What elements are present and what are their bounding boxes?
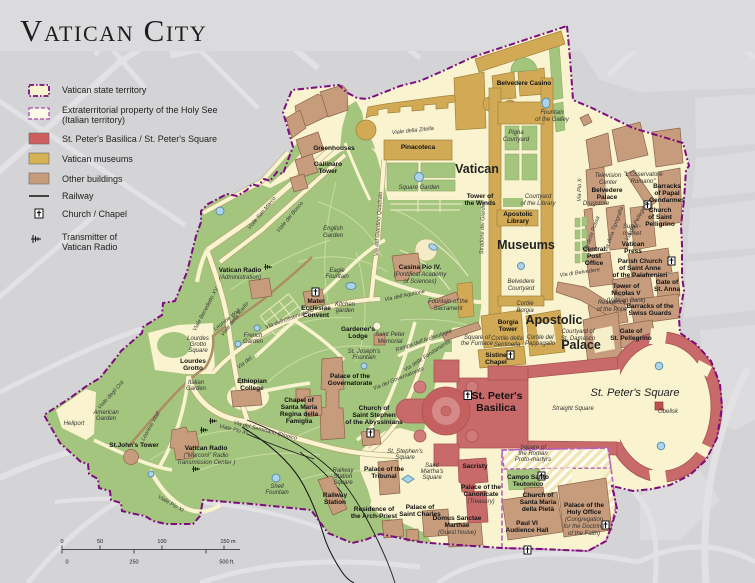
svg-text:Residence: Residence [598, 300, 627, 306]
svg-text:(Congregation: (Congregation [565, 517, 604, 523]
svg-text:Cortile: Cortile [516, 301, 534, 307]
svg-text:Basilica: Basilica [476, 402, 516, 414]
svg-text:Belvedere: Belvedere [507, 279, 535, 285]
svg-text:Grotto: Grotto [183, 365, 203, 372]
svg-text:Domus Sanctae: Domus Sanctae [433, 515, 482, 522]
svg-text:Heliport: Heliport [64, 421, 85, 427]
svg-text:Central: Central [583, 246, 606, 253]
svg-text:Audience Hall: Audience Hall [506, 527, 549, 534]
svg-text:of the Abyssinians: of the Abyssinians [345, 419, 403, 426]
svg-text:500 ft.: 500 ft. [219, 560, 235, 566]
svg-text:Vatican: Vatican [455, 162, 499, 176]
svg-text:St. Pellegrino: St. Pellegrino [610, 335, 652, 342]
svg-text:0: 0 [65, 560, 68, 566]
svg-text:Super-: Super- [623, 224, 641, 230]
svg-text:Drugstore: Drugstore [583, 201, 610, 207]
svg-text:Tower: Tower [319, 168, 338, 175]
svg-text:Mater: Mater [307, 298, 325, 305]
svg-text:Via Pio X: Via Pio X [577, 178, 584, 201]
svg-text:("Marconi" Radio: ("Marconi" Radio [184, 453, 230, 459]
svg-text:Center: Center [599, 180, 618, 186]
svg-text:of the Library: of the Library [520, 201, 556, 207]
svg-text:Palace of the: Palace of the [564, 502, 604, 509]
svg-text:Swiss Guards: Swiss Guards [629, 310, 672, 317]
svg-text:Marthae: Marthae [445, 522, 470, 529]
svg-text:Teutonico: Teutonico [513, 481, 544, 488]
svg-text:Palace of the: Palace of the [330, 373, 370, 380]
svg-text:St.John's Tower: St.John's Tower [109, 442, 159, 449]
svg-text:of Papal: of Papal [654, 190, 679, 197]
svg-text:Vatican museums: Vatican museums [62, 154, 133, 164]
svg-text:St. Damasco: St. Damasco [561, 336, 596, 342]
svg-text:(Pontifical Academy: (Pontifical Academy [394, 272, 448, 278]
svg-text:Santa Maria: Santa Maria [281, 404, 318, 411]
svg-text:Vatican: Vatican [622, 241, 645, 248]
svg-text:(Administration): (Administration) [219, 275, 261, 281]
svg-text:Gendarmes: Gendarmes [649, 197, 685, 204]
svg-text:Barracks: Barracks [653, 183, 681, 190]
svg-text:of the Palafrenieri: of the Palafrenieri [613, 272, 668, 279]
svg-text:Lourdes: Lourdes [180, 358, 206, 365]
svg-text:Square: Square [333, 480, 353, 486]
svg-text:Saint Stephen: Saint Stephen [352, 412, 395, 419]
svg-text:Extraterritorial property of t: Extraterritorial property of the Holy Se… [62, 105, 218, 115]
svg-text:Residence of: Residence of [354, 506, 395, 513]
svg-text:Gate of: Gate of [620, 328, 643, 335]
svg-text:Palace of the: Palace of the [461, 484, 501, 491]
svg-text:College: College [240, 385, 264, 392]
svg-text:the Furnace: the Furnace [461, 341, 494, 347]
svg-text:Church / Chapel: Church / Chapel [62, 209, 127, 219]
svg-text:Belvedere Casino: Belvedere Casino [497, 80, 552, 87]
svg-text:Paul VI: Paul VI [516, 520, 538, 527]
svg-text:the Winds: the Winds [465, 200, 496, 207]
svg-text:Vatican state territory: Vatican state territory [62, 85, 147, 95]
svg-text:Garden: Garden [323, 233, 344, 239]
svg-text:St. Peter's: St. Peter's [472, 390, 523, 402]
svg-text:Gate of: Gate of [656, 279, 679, 286]
svg-text:Church of: Church of [359, 405, 391, 412]
svg-text:Television: Television [595, 173, 622, 179]
svg-text:Apostolic: Apostolic [503, 211, 533, 218]
svg-text:Courtyard: Courtyard [525, 194, 552, 200]
svg-text:Square: Square [395, 455, 415, 461]
svg-text:Sistine: Sistine [485, 352, 507, 359]
svg-text:Palace of: Palace of [406, 504, 435, 511]
svg-text:market: market [623, 231, 642, 237]
svg-text:Garden: Garden [243, 339, 264, 345]
svg-text:Square: Square [188, 348, 208, 354]
svg-text:Pappagallo: Pappagallo [525, 341, 556, 347]
svg-text:Borgia: Borgia [516, 308, 534, 314]
svg-text:della Pietà: della Pietà [522, 506, 555, 513]
svg-text:Memorial: Memorial [378, 339, 403, 345]
svg-text:Square Garden: Square Garden [398, 185, 440, 191]
svg-text:Convent: Convent [303, 312, 330, 319]
svg-text:250: 250 [129, 560, 138, 566]
svg-text:Famiglia: Famiglia [286, 418, 313, 425]
svg-text:of Sciences): of Sciences) [403, 279, 436, 285]
svg-text:of Saint: of Saint [648, 214, 673, 221]
svg-text:of the Faith): of the Faith) [568, 531, 600, 537]
svg-text:Sacrament: Sacrament [433, 306, 462, 312]
svg-text:Vatican City: Vatican City [20, 13, 207, 48]
svg-text:Vatican Radio: Vatican Radio [62, 242, 117, 252]
svg-text:Ethiopian: Ethiopian [237, 378, 267, 385]
svg-text:Vatican Radio: Vatican Radio [219, 267, 262, 274]
svg-text:Railway: Railway [62, 191, 94, 201]
svg-text:Museums: Museums [497, 238, 555, 252]
svg-text:Casina Pio IV.: Casina Pio IV. [399, 264, 442, 271]
svg-text:Square: Square [422, 475, 442, 481]
svg-text:"L'Osservatore: "L'Osservatore [623, 172, 663, 178]
svg-text:Church: Church [649, 207, 672, 214]
svg-text:Tower: Tower [499, 326, 518, 333]
svg-text:Courtyard of: Courtyard of [561, 329, 595, 335]
svg-text:100: 100 [157, 539, 166, 545]
svg-text:Pinacoteca: Pinacoteca [401, 144, 436, 151]
svg-text:Office: Office [585, 260, 604, 267]
svg-text:for the Doctrine: for the Doctrine [563, 524, 605, 530]
svg-text:Garden: Garden [186, 386, 207, 392]
svg-text:Lodge: Lodge [348, 333, 368, 340]
svg-text:Barracks of the: Barracks of the [626, 303, 674, 310]
svg-text:Tribunal: Tribunal [371, 473, 396, 480]
svg-text:English: English [323, 226, 343, 232]
svg-text:Obelisk: Obelisk [658, 409, 679, 415]
svg-text:Saint Peter: Saint Peter [375, 332, 406, 338]
svg-text:Fountain: Fountain [540, 110, 564, 116]
svg-text:Straight Square: Straight Square [552, 406, 594, 412]
svg-text:Pelligrino: Pelligrino [645, 221, 675, 228]
svg-text:50: 50 [97, 539, 103, 545]
svg-text:St. Peter's Square: St. Peter's Square [591, 387, 680, 399]
svg-text:Sentinella: Sentinella [494, 342, 521, 348]
svg-text:of the Pope: of the Pope [597, 307, 628, 313]
svg-text:Chapel of: Chapel of [284, 397, 314, 404]
svg-text:Apostolic: Apostolic [526, 313, 583, 327]
svg-text:Santa Maria: Santa Maria [520, 499, 557, 506]
svg-text:St. Peter's Basilica / St. Pet: St. Peter's Basilica / St. Peter's Squar… [62, 134, 217, 144]
svg-text:St. Anna: St. Anna [654, 286, 681, 293]
svg-text:Garden: Garden [96, 416, 117, 422]
svg-text:Gardener's: Gardener's [341, 326, 375, 333]
svg-text:(Guest house): (Guest house) [438, 530, 476, 536]
svg-text:Press: Press [624, 248, 642, 255]
svg-text:Fountain: Fountain [352, 355, 376, 361]
svg-text:Fountain of the: Fountain of the [428, 299, 469, 305]
svg-text:Vatican Radio: Vatican Radio [185, 445, 228, 452]
svg-text:Church of: Church of [523, 492, 555, 499]
svg-text:(Italian territory): (Italian territory) [62, 115, 125, 125]
svg-text:Library: Library [507, 218, 529, 225]
svg-text:Governatorate: Governatorate [328, 380, 373, 387]
svg-text:Tower of: Tower of [613, 283, 640, 290]
svg-text:Canonicate: Canonicate [463, 491, 498, 498]
svg-text:Nicolas V: Nicolas V [611, 290, 641, 297]
svg-text:(Treasury): (Treasury) [467, 499, 494, 505]
svg-text:0: 0 [60, 539, 63, 545]
svg-text:Fountain: Fountain [325, 274, 349, 280]
svg-text:Holy Office: Holy Office [567, 509, 602, 516]
svg-text:Borgia: Borgia [498, 319, 519, 326]
svg-text:the Arch-Priest: the Arch-Priest [351, 513, 398, 520]
svg-text:Chapel: Chapel [485, 359, 507, 366]
svg-text:Proto-martyrs: Proto-martyrs [515, 457, 551, 463]
svg-text:Transmission Center ): Transmission Center ) [177, 460, 236, 466]
svg-text:Ecclesiae: Ecclesiae [301, 305, 331, 312]
svg-text:Campo Santo: Campo Santo [507, 474, 549, 481]
svg-text:Courtyard: Courtyard [508, 286, 535, 292]
svg-text:Transmitter of: Transmitter of [62, 232, 118, 242]
svg-text:150 m: 150 m [220, 539, 236, 545]
svg-text:Parish Church: Parish Church [618, 258, 662, 265]
svg-text:Palace of the: Palace of the [364, 466, 404, 473]
svg-text:Railway: Railway [323, 492, 348, 499]
svg-text:of the Galley: of the Galley [535, 117, 570, 123]
svg-text:Station: Station [324, 499, 346, 506]
svg-text:Sacristy: Sacristy [462, 463, 488, 470]
svg-text:Palace: Palace [597, 194, 618, 201]
svg-text:Gallinaro: Gallinaro [314, 161, 342, 168]
svg-text:Regina della: Regina della [280, 411, 319, 418]
svg-text:Tower of: Tower of [467, 193, 494, 200]
svg-text:Post: Post [587, 253, 602, 260]
svg-text:Courtyard: Courtyard [503, 137, 530, 143]
svg-text:Other buildings: Other buildings [62, 174, 123, 184]
svg-text:Belvedere: Belvedere [591, 187, 622, 194]
svg-text:Fountain: Fountain [265, 490, 289, 496]
svg-text:garden: garden [336, 308, 355, 314]
svg-text:of Saint Anne: of Saint Anne [619, 265, 661, 272]
svg-text:Greenhouses: Greenhouses [313, 145, 355, 152]
svg-text:Pigna: Pigna [508, 130, 524, 136]
